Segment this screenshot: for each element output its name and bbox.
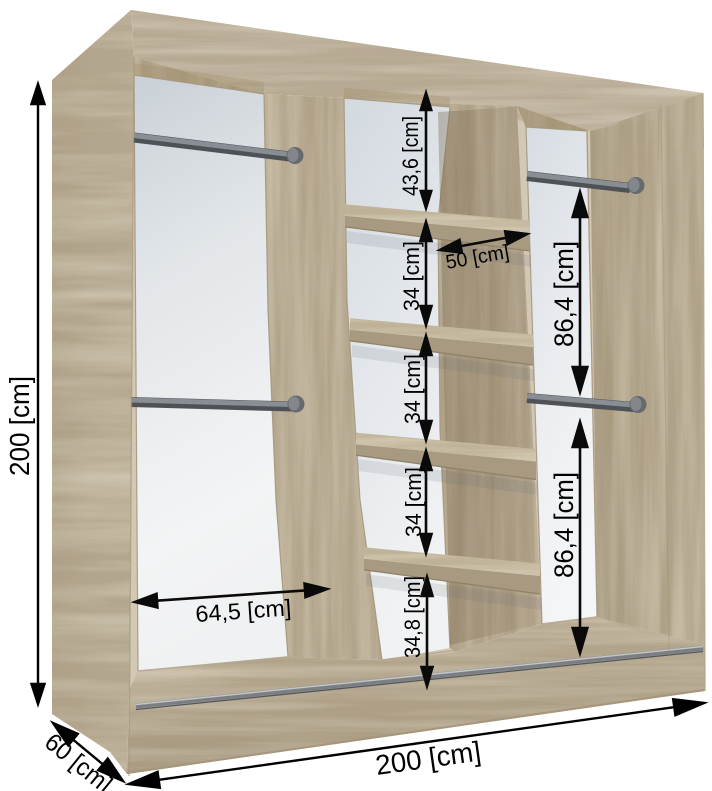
svg-text:34 [cm]: 34 [cm] bbox=[401, 467, 426, 537]
svg-text:86,4 [cm]: 86,4 [cm] bbox=[549, 241, 579, 347]
svg-text:200 [cm]: 200 [cm] bbox=[374, 735, 483, 780]
svg-text:86,4 [cm]: 86,4 [cm] bbox=[549, 472, 579, 578]
svg-text:34,8 [cm]: 34,8 [cm] bbox=[400, 576, 425, 658]
svg-text:43,6 [cm]: 43,6 [cm] bbox=[398, 116, 423, 196]
svg-text:200 [cm]: 200 [cm] bbox=[4, 376, 35, 476]
svg-text:34 [cm]: 34 [cm] bbox=[399, 241, 424, 311]
svg-text:34 [cm]: 34 [cm] bbox=[400, 354, 425, 424]
